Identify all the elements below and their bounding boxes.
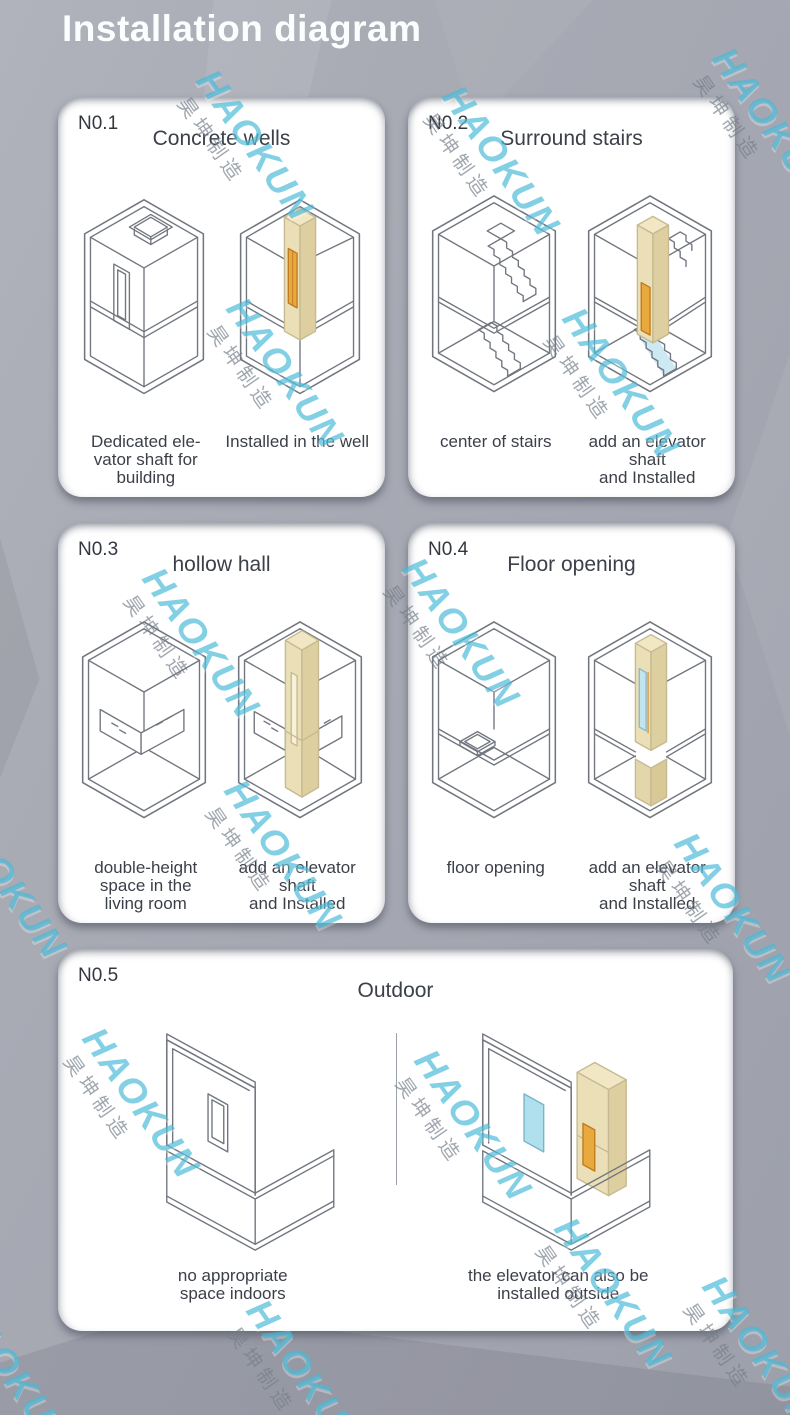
caption-right: Installed in the well bbox=[222, 433, 374, 487]
card-surround-stairs: N0.2 Surround stairs bbox=[408, 97, 735, 497]
caption-right: add an elevator shaft and Installed bbox=[572, 859, 724, 913]
drawing-divider bbox=[396, 1033, 397, 1185]
caption-right: add an elevator shaft and Installed bbox=[572, 433, 724, 487]
card-title: Surround stairs bbox=[408, 127, 735, 151]
captions-row: double-height space in the living room a… bbox=[70, 859, 373, 913]
card-floor-opening: N0.4 Floor opening bbox=[408, 523, 735, 923]
card-title: Outdoor bbox=[58, 979, 733, 1003]
caption-left: floor opening bbox=[420, 859, 572, 913]
page-title: Installation diagram bbox=[62, 8, 422, 50]
watermark-brand-cn: 昊坤制造 bbox=[0, 1318, 49, 1415]
drawing-installed-in-well bbox=[227, 185, 373, 420]
drawings-row bbox=[58, 185, 385, 420]
drawing-elevator-shaft-building bbox=[71, 185, 217, 420]
caption-left: no appropriate space indoors bbox=[70, 1267, 396, 1303]
captions-row: center of stairs add an elevator shaft a… bbox=[420, 433, 723, 487]
drawing-surround-stairs bbox=[421, 185, 567, 420]
caption-left: center of stairs bbox=[420, 433, 572, 487]
drawings-row bbox=[408, 185, 735, 420]
caption-right: add an elevator shaft and Installed bbox=[222, 859, 374, 913]
caption-left: Dedicated ele- vator shaft for building bbox=[70, 433, 222, 487]
card-title: Floor opening bbox=[408, 553, 735, 577]
drawing-outdoor-elevator-installed bbox=[414, 1027, 694, 1262]
card-outdoor: N0.5 Outdoor bbox=[58, 949, 733, 1331]
captions-row: no appropriate space indoors the elevato… bbox=[70, 1267, 721, 1303]
page: Installation diagram N0.1 Concrete wells bbox=[0, 0, 790, 1415]
card-concrete-wells: N0.1 Concrete wells bbox=[58, 97, 385, 497]
drawing-hollow-hall bbox=[71, 611, 217, 846]
captions-row: Dedicated ele- vator shaft for building … bbox=[70, 433, 373, 487]
drawing-floor-elevator-installed bbox=[577, 611, 723, 846]
watermark-brand-cn: 昊坤制造 bbox=[0, 828, 44, 981]
drawings-row bbox=[58, 611, 385, 846]
card-hollow-hall: N0.3 hollow hall bbox=[58, 523, 385, 923]
drawing-stairs-elevator-installed bbox=[577, 185, 723, 420]
card-title: Concrete wells bbox=[58, 127, 385, 151]
caption-right: the elevator can also be installed outsi… bbox=[396, 1267, 722, 1303]
watermark-brand-cn: 昊坤制造 bbox=[222, 1320, 341, 1415]
drawing-hall-elevator-installed bbox=[227, 611, 373, 846]
drawing-floor-opening bbox=[421, 611, 567, 846]
drawings-row bbox=[408, 611, 735, 846]
drawing-outdoor-space bbox=[98, 1027, 378, 1262]
card-title: hollow hall bbox=[58, 553, 385, 577]
captions-row: floor opening add an elevator shaft and … bbox=[420, 859, 723, 913]
caption-left: double-height space in the living room bbox=[70, 859, 222, 913]
